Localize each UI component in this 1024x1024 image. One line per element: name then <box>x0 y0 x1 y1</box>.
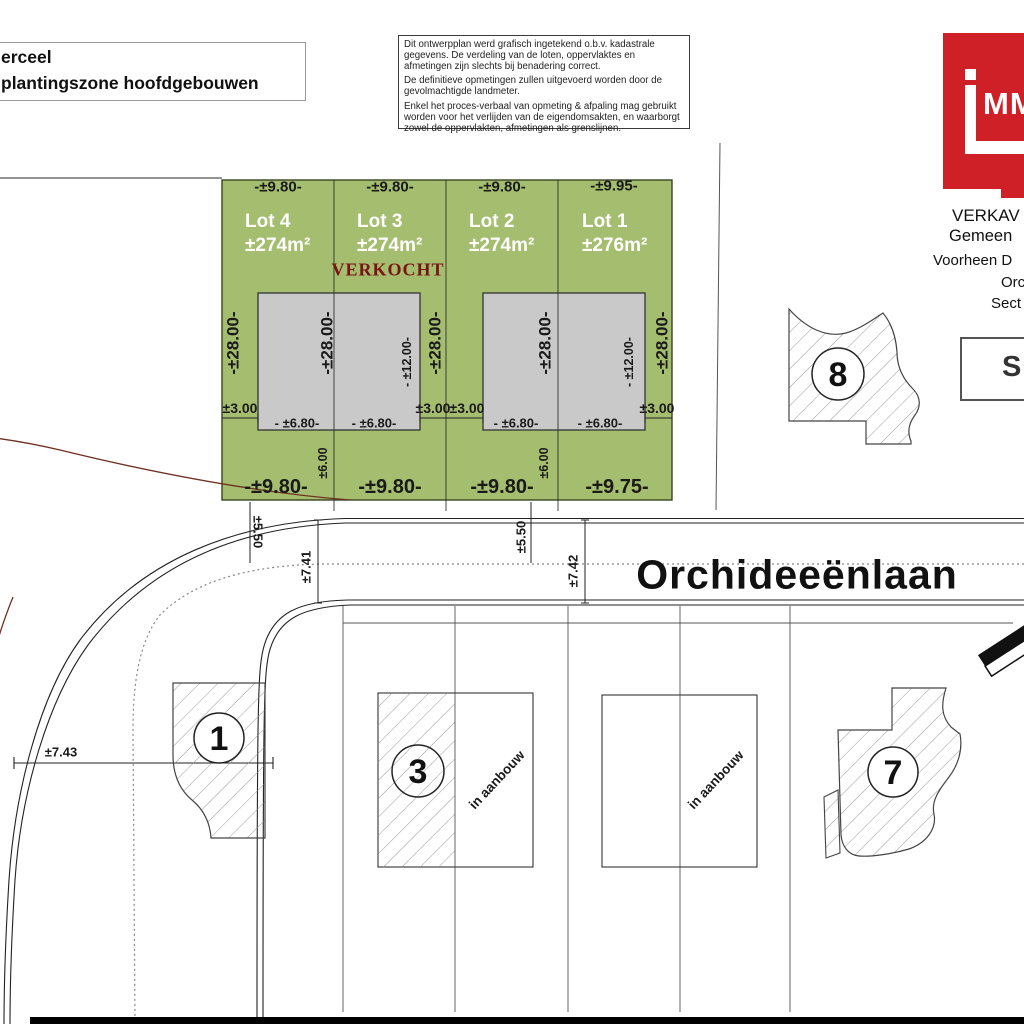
boundary-line-right <box>716 143 720 510</box>
parcel-7-number: 7 <box>884 754 903 792</box>
lot-4-area: ±274m² <box>245 234 310 258</box>
depth-dim-5: -±28.00- <box>654 311 671 374</box>
lot3-front-dim: -±9.80- <box>366 180 413 195</box>
parcel-8-number: 8 <box>829 356 848 394</box>
disclaimer-p2: De definitieve opmetingen zullen uitgevo… <box>404 76 684 98</box>
logo-underline <box>965 141 1024 154</box>
bottom-bar <box>30 1017 1024 1024</box>
legend-box: erceel plantingszone hoofdgebouwen <box>0 42 306 101</box>
lot3-rear-dim: -±9.80- <box>358 477 421 497</box>
lot-3-area: ±274m² <box>357 234 422 258</box>
north-arrow-icon <box>978 625 1024 676</box>
parcel-7-flap <box>824 790 840 858</box>
header-line-verkav: VERKAV <box>952 206 1020 226</box>
half-width-dim-3: - ±6.80- <box>494 417 539 430</box>
setback-dim-3: ±3.00 <box>450 401 485 415</box>
legend-line-2: plantingszone hoofdgebouwen <box>1 73 259 94</box>
lot-boundary-ticks <box>334 500 558 511</box>
depth-dim-1: -±28.00- <box>225 311 242 374</box>
header-line-gemeen: Gemeen <box>949 227 1012 246</box>
lot-4-name: Lot 4 <box>245 210 310 234</box>
disclaimer-box: Dit ontwerpplan werd grafisch ingetekend… <box>398 35 690 129</box>
lot2-rear-dim: -±9.80- <box>470 477 533 497</box>
lot1-front-dim: -±9.95- <box>590 179 637 194</box>
road-width-dim-1: ±7.41 <box>300 551 313 583</box>
block-depth-dim-2: - ±12.00- <box>623 337 636 387</box>
road-half-dim-lines <box>250 502 531 563</box>
immo-logo: MM <box>943 33 1024 189</box>
rear-setback-dim-1: ±6.00 <box>317 447 330 478</box>
side-road-width-dim: ±7.43 <box>45 746 77 759</box>
setback-dim-2: ±3.00 <box>416 401 451 415</box>
lot-1-name: Lot 1 <box>582 210 647 234</box>
header-line-sect: Sect <box>991 295 1021 312</box>
lot4-rear-dim: -±9.80- <box>244 477 307 497</box>
block-depth-dim-1: - ±12.00- <box>401 337 414 387</box>
street-name: Orchideeënlaan <box>636 552 958 599</box>
rear-setback-dim-2: ±6.00 <box>538 447 551 478</box>
lot2-front-dim: -±9.80- <box>478 180 525 195</box>
building-zone-lots34 <box>258 293 420 430</box>
lot-3-label: Lot 3 ±274m² <box>357 210 422 258</box>
scale-box: SC <box>960 337 1024 401</box>
road-width-dim-lines <box>314 520 589 603</box>
lot-2-area: ±274m² <box>469 234 534 258</box>
logo-red-strip <box>1001 186 1024 198</box>
plan-drawing: 1 3 7 8 <box>0 0 1024 1024</box>
red-boundary-segment <box>0 597 13 640</box>
building-zone-lots12 <box>483 293 645 430</box>
lot-1-area: ±276m² <box>582 234 647 258</box>
parcel-1-number: 1 <box>210 720 229 758</box>
half-width-dim-2: - ±6.80- <box>352 417 397 430</box>
building-6-outline <box>602 695 757 867</box>
logo-i-dot <box>965 69 976 80</box>
lot1-rear-dim: -±9.75- <box>585 477 648 497</box>
depth-dim-3: -±28.00- <box>427 311 444 374</box>
legend-line-1: erceel <box>1 47 52 68</box>
verkocht-status: VERKOCHT <box>331 260 444 281</box>
parcel-3-number: 3 <box>409 753 428 791</box>
site-plan-page: 1 3 7 8 erceel plantingszone hoofdgebouw… <box>0 0 1024 1024</box>
lot-2-label: Lot 2 ±274m² <box>469 210 534 258</box>
lot-2-name: Lot 2 <box>469 210 534 234</box>
header-line-voorheen: Voorheen D <box>933 252 1012 269</box>
lot-4-label: Lot 4 ±274m² <box>245 210 310 258</box>
setback-dim-1: ±3.00 <box>223 401 258 415</box>
road-half-dim-1: ±5.50 <box>252 516 265 548</box>
half-width-dim-1: - ±6.80- <box>275 417 320 430</box>
depth-dim-2: -±28.00- <box>319 311 336 374</box>
lot-1-label: Lot 1 ±276m² <box>582 210 647 258</box>
half-width-dim-4: - ±6.80- <box>578 417 623 430</box>
depth-dim-4: -±28.00- <box>537 311 554 374</box>
disclaimer-p3: Enkel het proces-verbaal van opmeting & … <box>404 102 684 134</box>
lot-3-name: Lot 3 <box>357 210 422 234</box>
scale-box-label: SC <box>1002 351 1024 384</box>
header-line-orc: Orc <box>1001 274 1024 291</box>
lot4-front-dim: -±9.80- <box>254 180 301 195</box>
logo-text: MM <box>983 86 1024 122</box>
disclaimer-p1: Dit ontwerpplan werd grafisch ingetekend… <box>404 40 684 72</box>
road-width-dim-2: ±7.42 <box>567 555 580 587</box>
road-half-dim-2: ±5.50 <box>515 521 528 553</box>
setback-dim-4: ±3.00 <box>640 401 675 415</box>
